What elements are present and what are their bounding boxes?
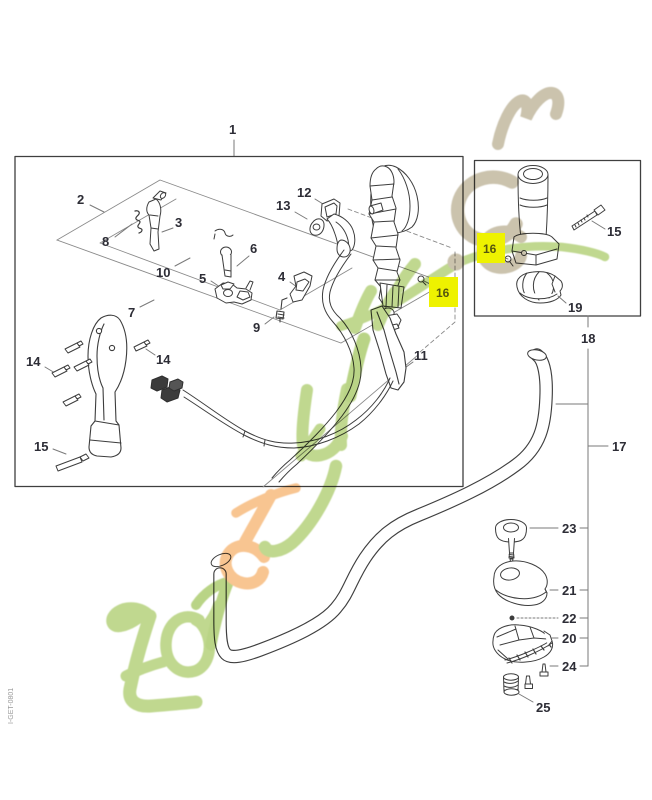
svg-text:I-GET-0801: I-GET-0801 — [8, 688, 15, 724]
svg-text:23: 23 — [562, 521, 576, 536]
svg-text:21: 21 — [562, 583, 576, 598]
svg-text:3: 3 — [175, 215, 182, 230]
svg-text:13: 13 — [276, 198, 290, 213]
svg-text:20: 20 — [562, 631, 576, 646]
svg-text:18: 18 — [581, 331, 595, 346]
svg-text:5: 5 — [199, 271, 206, 286]
svg-text:9: 9 — [253, 320, 260, 335]
svg-text:16: 16 — [436, 286, 450, 300]
svg-text:8: 8 — [102, 234, 109, 249]
svg-text:19: 19 — [568, 300, 582, 315]
svg-text:15: 15 — [607, 224, 621, 239]
svg-text:12: 12 — [297, 185, 311, 200]
svg-text:4: 4 — [278, 269, 286, 284]
svg-text:17: 17 — [612, 439, 626, 454]
svg-text:11: 11 — [414, 348, 428, 363]
svg-text:16: 16 — [483, 242, 497, 256]
svg-text:14: 14 — [26, 354, 41, 369]
svg-text:14: 14 — [156, 352, 171, 367]
svg-text:10: 10 — [156, 265, 170, 280]
svg-text:2: 2 — [77, 192, 84, 207]
svg-text:22: 22 — [562, 611, 576, 626]
svg-text:25: 25 — [536, 700, 550, 715]
svg-text:7: 7 — [128, 305, 135, 320]
svg-text:24: 24 — [562, 659, 577, 674]
svg-text:15: 15 — [34, 439, 48, 454]
svg-text:6: 6 — [250, 241, 257, 256]
svg-text:1: 1 — [229, 122, 236, 137]
